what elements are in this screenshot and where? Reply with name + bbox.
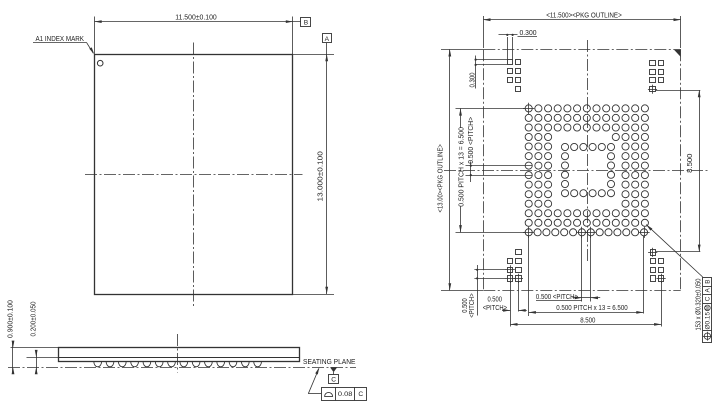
svg-text:153 x Ø0.320±0.050: 153 x Ø0.320±0.050 (695, 278, 702, 330)
svg-text:M: M (705, 306, 711, 310)
svg-text:C: C (331, 377, 336, 384)
svg-text:0.08: 0.08 (338, 391, 353, 398)
svg-text:0.500: 0.500 (462, 298, 469, 313)
svg-text:A: A (325, 36, 330, 43)
svg-text:<13.00><PKG OUTLINE>: <13.00><PKG OUTLINE> (437, 144, 444, 212)
svg-text:11.500±0.100: 11.500±0.100 (175, 14, 217, 21)
svg-text:SEATING PLANE: SEATING PLANE (303, 359, 356, 366)
svg-text:A: A (705, 288, 712, 293)
svg-text:0.500: 0.500 (487, 296, 502, 303)
svg-text:0.300: 0.300 (470, 72, 477, 87)
svg-text:<11.500><PKG OUTLINE>: <11.500><PKG OUTLINE> (546, 12, 622, 19)
svg-text:8.500: 8.500 (687, 153, 694, 172)
svg-text:<PITCH>: <PITCH> (469, 293, 476, 317)
svg-text:8.500: 8.500 (580, 318, 595, 325)
svg-text:B: B (705, 279, 712, 283)
svg-text:Ø0.15: Ø0.15 (705, 312, 712, 330)
svg-text:0.200±0.050: 0.200±0.050 (30, 301, 37, 336)
svg-text:C: C (705, 296, 712, 301)
svg-text:0.500 PITCH x 13 = 6.500: 0.500 PITCH x 13 = 6.500 (459, 127, 466, 207)
svg-text:0.300: 0.300 (520, 30, 537, 37)
svg-text:<PITCH>: <PITCH> (483, 305, 507, 312)
svg-text:0.900±0.100: 0.900±0.100 (7, 300, 14, 338)
svg-text:13.000±0.100: 13.000±0.100 (317, 151, 324, 201)
svg-text:0.500 <PITCH>: 0.500 <PITCH> (468, 117, 475, 164)
svg-text:0.500 <PITCH>: 0.500 <PITCH> (536, 294, 578, 301)
svg-text:B: B (304, 19, 309, 26)
svg-text:C: C (358, 391, 363, 398)
svg-text:0.500 PITCH x 13 = 6.500: 0.500 PITCH x 13 = 6.500 (556, 305, 628, 312)
